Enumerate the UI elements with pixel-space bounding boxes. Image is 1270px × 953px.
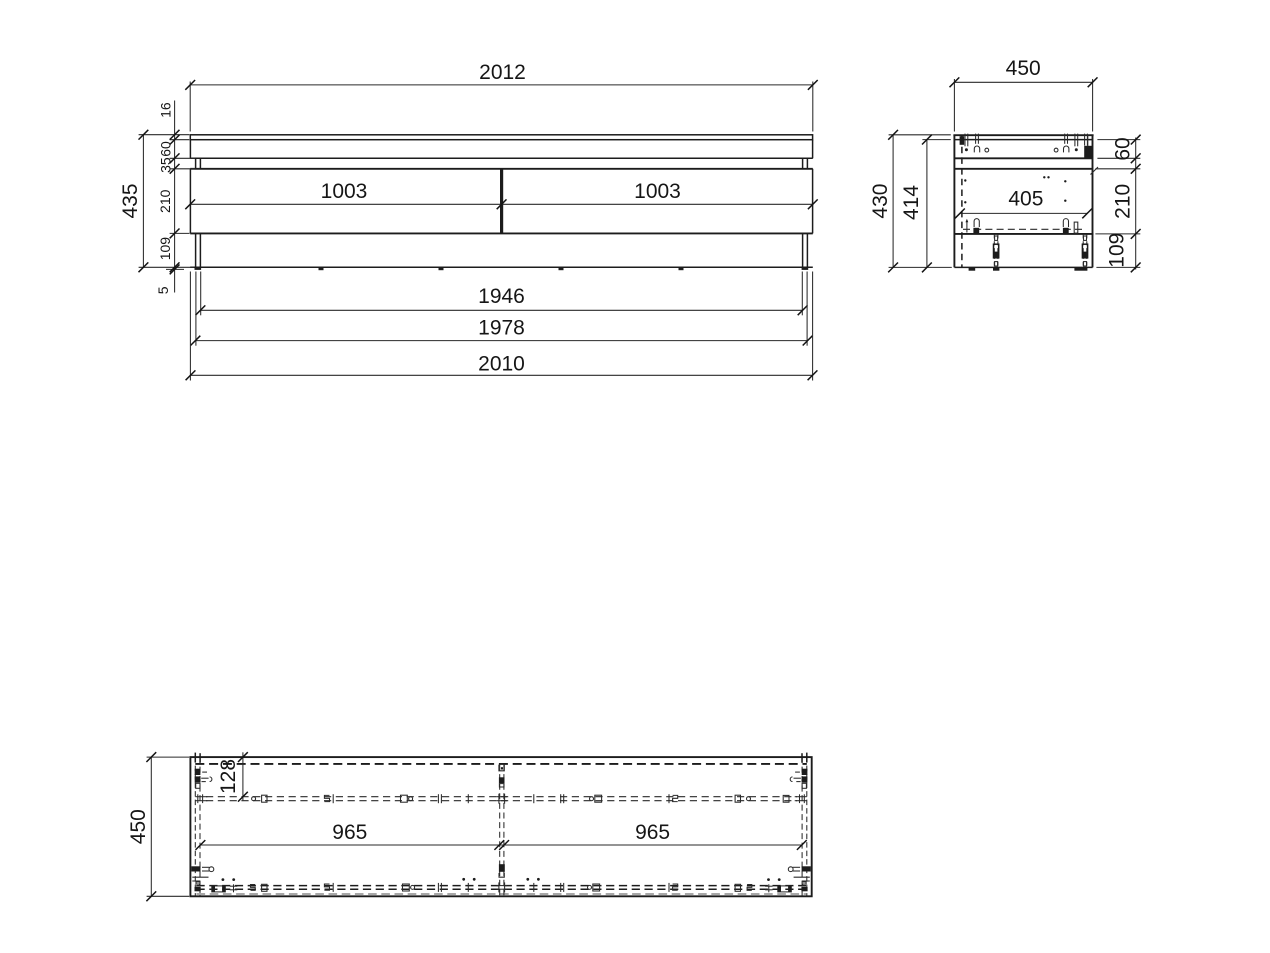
svg-text:1003: 1003 [634,180,681,203]
svg-text:16: 16 [157,102,173,118]
svg-text:435: 435 [119,183,142,218]
svg-text:414: 414 [900,185,923,220]
svg-text:60: 60 [157,141,173,157]
svg-text:128: 128 [217,759,240,794]
svg-text:109: 109 [157,237,173,261]
svg-text:60: 60 [1111,137,1134,160]
svg-text:109: 109 [1106,233,1129,268]
svg-text:450: 450 [1006,57,1041,80]
svg-text:35: 35 [157,157,173,173]
svg-text:965: 965 [635,821,670,844]
svg-text:1003: 1003 [321,180,368,203]
svg-text:965: 965 [332,821,367,844]
svg-text:2012: 2012 [479,61,526,84]
svg-text:5: 5 [155,286,171,294]
svg-text:1946: 1946 [478,285,525,308]
svg-text:405: 405 [1008,188,1043,211]
svg-text:450: 450 [127,809,150,844]
svg-text:2010: 2010 [478,353,525,376]
svg-text:210: 210 [1111,184,1134,219]
svg-text:210: 210 [157,189,173,213]
svg-text:1978: 1978 [478,316,525,339]
svg-text:430: 430 [869,184,892,219]
